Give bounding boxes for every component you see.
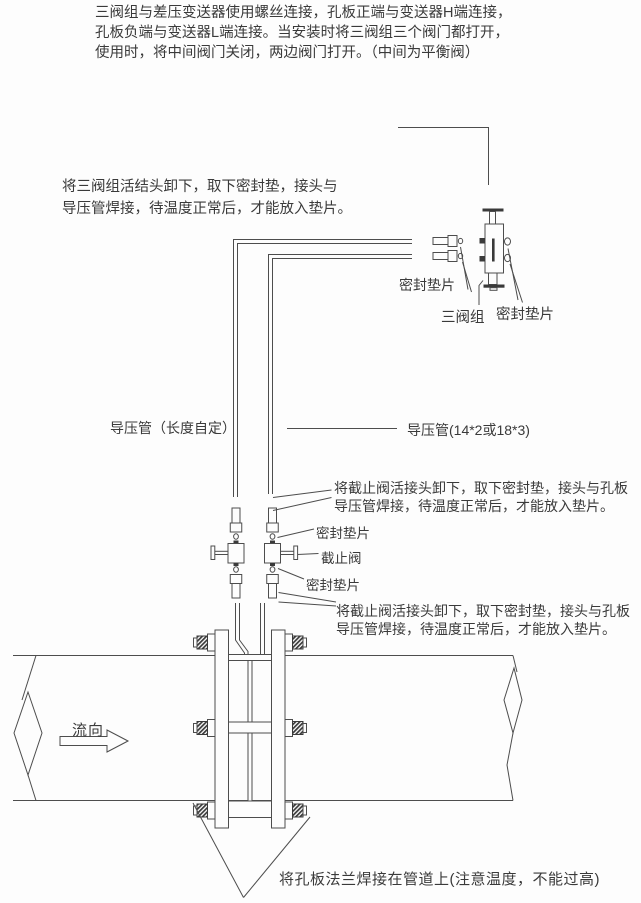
- manifold-port-l: [480, 256, 486, 262]
- stop-valve-right: [265, 508, 298, 598]
- note-flange-weld: 将孔板法兰焊接在管道上(注意温度，不能过高): [279, 868, 600, 889]
- note-manifold-union: 将三阀组活结头卸下，取下密封垫，接头与 导压管焊接，待温度正常后，才能放入垫片。: [62, 177, 352, 220]
- diagram-linework: [0, 0, 641, 903]
- manifold-port-h: [480, 238, 486, 244]
- label-gasket-right: 密封垫片: [496, 303, 554, 324]
- note-stop-valve-lower: 将截止阀活接头卸下，取下密封垫，接头与孔板 导压管焊接，待温度正常后，才能放入垫…: [336, 603, 630, 639]
- note-manifold-connection: 三阀组与差压变送器使用螺丝连接，孔板正端与变送器H端连接， 孔板负端与变送器L端…: [95, 4, 511, 63]
- pipe-break-left: [22, 656, 36, 701]
- label-impulse-pipe-size: 导压管(14*2或18*3): [407, 420, 530, 440]
- flange-plate-right: [272, 630, 286, 828]
- label-gasket-mid-top: 密封垫片: [316, 522, 370, 542]
- stop-valve-left: [211, 508, 244, 598]
- label-gasket-left: 密封垫片: [399, 275, 455, 295]
- valve-handle-stem: [215, 551, 229, 554]
- pipes-to-orifice: [236, 603, 265, 657]
- flange-bolts-top: [194, 634, 307, 651]
- label-three-valve-manifold: 三阀组: [441, 306, 485, 327]
- label-flow-direction: 流向: [72, 719, 104, 740]
- valve-handle-stem: [281, 551, 295, 554]
- label-stop-valve: 截止阀: [321, 547, 362, 567]
- valve-handle-bar: [294, 546, 298, 560]
- note-stop-valve-upper: 将截止阀活接头卸下，取下密封垫，接头与孔板 导压管焊接，待温度正常后，才能放入垫…: [334, 480, 628, 516]
- transmitter-connector-line: [398, 128, 489, 186]
- label-impulse-pipe-length: 导压管（长度自定）: [110, 418, 236, 438]
- label-gasket-mid-bottom: 密封垫片: [306, 574, 360, 594]
- orifice-carrier-bar: [229, 722, 272, 733]
- union-fittings: [433, 236, 463, 262]
- valve-handle-bar: [211, 546, 215, 560]
- impulse-pipes-top: [234, 240, 413, 498]
- installation-diagram-page: 三阀组与差压变送器使用螺丝连接，孔板正端与变送器H端连接， 孔板负端与变送器L端…: [0, 0, 641, 903]
- flange-plate-left: [215, 630, 229, 828]
- three-valve-manifold: [480, 209, 511, 291]
- orifice-flange-assembly: [194, 630, 307, 828]
